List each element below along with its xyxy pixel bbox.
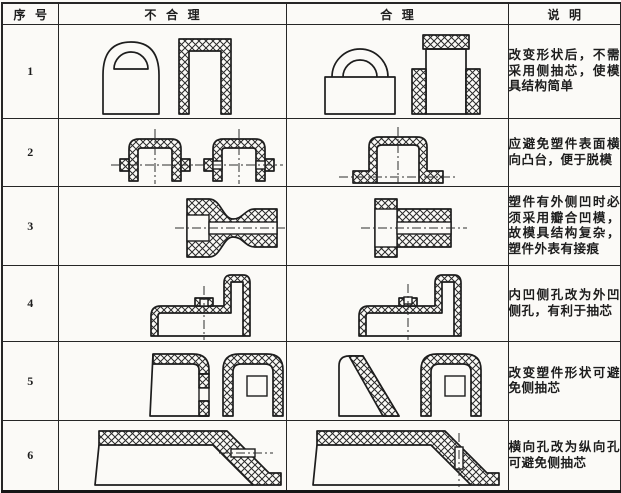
table-row-4: 4 内凹侧孔改为 (2, 266, 621, 342)
drawing-arched-part-no-side-core (287, 27, 508, 116)
figure-cell-unreasonable (58, 119, 286, 187)
row-note: 应避免塑件表面横向凸台，便于脱模 (508, 119, 621, 187)
col-header-reasonable: 合理 (286, 3, 508, 25)
col-header-index: 序号 (2, 3, 58, 25)
figure-cell-unreasonable (58, 25, 286, 119)
drawing-cap-with-bottom-flange (287, 121, 508, 185)
figure-cell-reasonable (286, 187, 508, 266)
figure-cell-unreasonable (58, 266, 286, 342)
col-header-unreasonable: 不合理 (58, 3, 286, 25)
figure-cell-reasonable (286, 119, 508, 187)
row-number: 1 (2, 25, 58, 119)
drawing-flanged-bushing (287, 189, 508, 263)
drawing-stepped-part-horizontal-hole (59, 423, 285, 489)
figure-cell-reasonable (286, 421, 508, 493)
figure-cell-reasonable (286, 266, 508, 342)
row-number: 2 (2, 119, 58, 187)
row-note: 横向孔改为纵向孔可避免侧抽芯 (508, 421, 621, 493)
figure-cell-reasonable (286, 342, 508, 421)
table-row-3: 3 (2, 187, 621, 266)
row-number: 5 (2, 342, 58, 421)
row-note: 改变形状后，不需采用侧抽芯，使模具结构简单 (508, 25, 621, 119)
table-row-5: 5 (2, 342, 621, 421)
figure-cell-reasonable (286, 25, 508, 119)
drawing-shell-external-side-hole (287, 268, 508, 340)
figure-cell-unreasonable (58, 187, 286, 266)
figure-cell-unreasonable (58, 342, 286, 421)
table-row-1: 1 (2, 25, 621, 119)
row-number: 3 (2, 187, 58, 266)
table-row-6: 6 横向孔改为纵 (2, 421, 621, 493)
row-number: 4 (2, 266, 58, 342)
drawing-shell-internal-side-hole (59, 268, 285, 340)
scanned-document-page: 序号 不合理 合理 说明 1 (0, 0, 621, 493)
row-note: 塑件有外侧凹时必须采用瓣合凹模，故模具结构复杂，塑件外表有接痕 (508, 187, 621, 266)
drawing-wedge-part-no-side-hole (287, 344, 508, 418)
drawing-spool-with-external-undercut (59, 189, 285, 263)
drawing-stepped-part-vertical-hole (287, 423, 508, 489)
header-row: 序号 不合理 合理 说明 (2, 3, 621, 25)
mold-design-guide-table: 序号 不合理 合理 说明 1 (1, 2, 621, 493)
drawing-caps-with-side-bosses (59, 121, 285, 185)
table-row-2: 2 (2, 119, 621, 187)
drawing-dome-part-side-hole (59, 27, 285, 116)
col-header-note: 说明 (508, 3, 621, 25)
row-note: 内凹侧孔改为外凹侧孔，有利于抽芯 (508, 266, 621, 342)
row-number: 6 (2, 421, 58, 493)
figure-cell-unreasonable (58, 421, 286, 493)
drawing-box-with-side-wall-hole (59, 344, 285, 418)
row-note: 改变塑件形状可避免侧抽芯 (508, 342, 621, 421)
